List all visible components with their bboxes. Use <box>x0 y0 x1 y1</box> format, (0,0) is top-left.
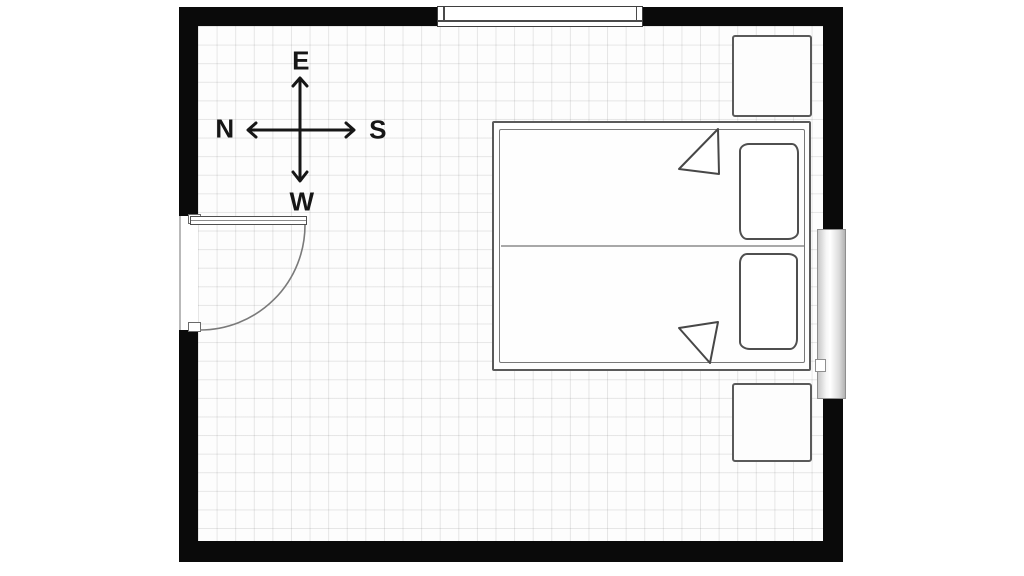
mattress-center-line <box>501 245 804 247</box>
nightstand-bottom-right <box>732 383 812 462</box>
nightstand-top-right <box>732 35 812 117</box>
pillow-bottom <box>739 253 798 350</box>
window-top-tick-left <box>443 7 445 20</box>
door-jamb-bottom <box>188 322 201 332</box>
compass-label-east: E <box>292 46 310 77</box>
window-top-glass-line <box>438 20 642 22</box>
window-right-handle <box>815 359 826 372</box>
compass-label-south: S <box>369 115 387 146</box>
window-top-tick-right <box>636 7 638 20</box>
pillow-top <box>739 143 799 240</box>
compass-label-west: W <box>289 187 314 218</box>
window-right-icon <box>817 229 846 399</box>
door-opening <box>179 216 198 330</box>
window-top-icon <box>437 6 643 27</box>
floor-plan-canvas: E N S W <box>0 0 1024 576</box>
compass-label-north: N <box>215 114 234 145</box>
